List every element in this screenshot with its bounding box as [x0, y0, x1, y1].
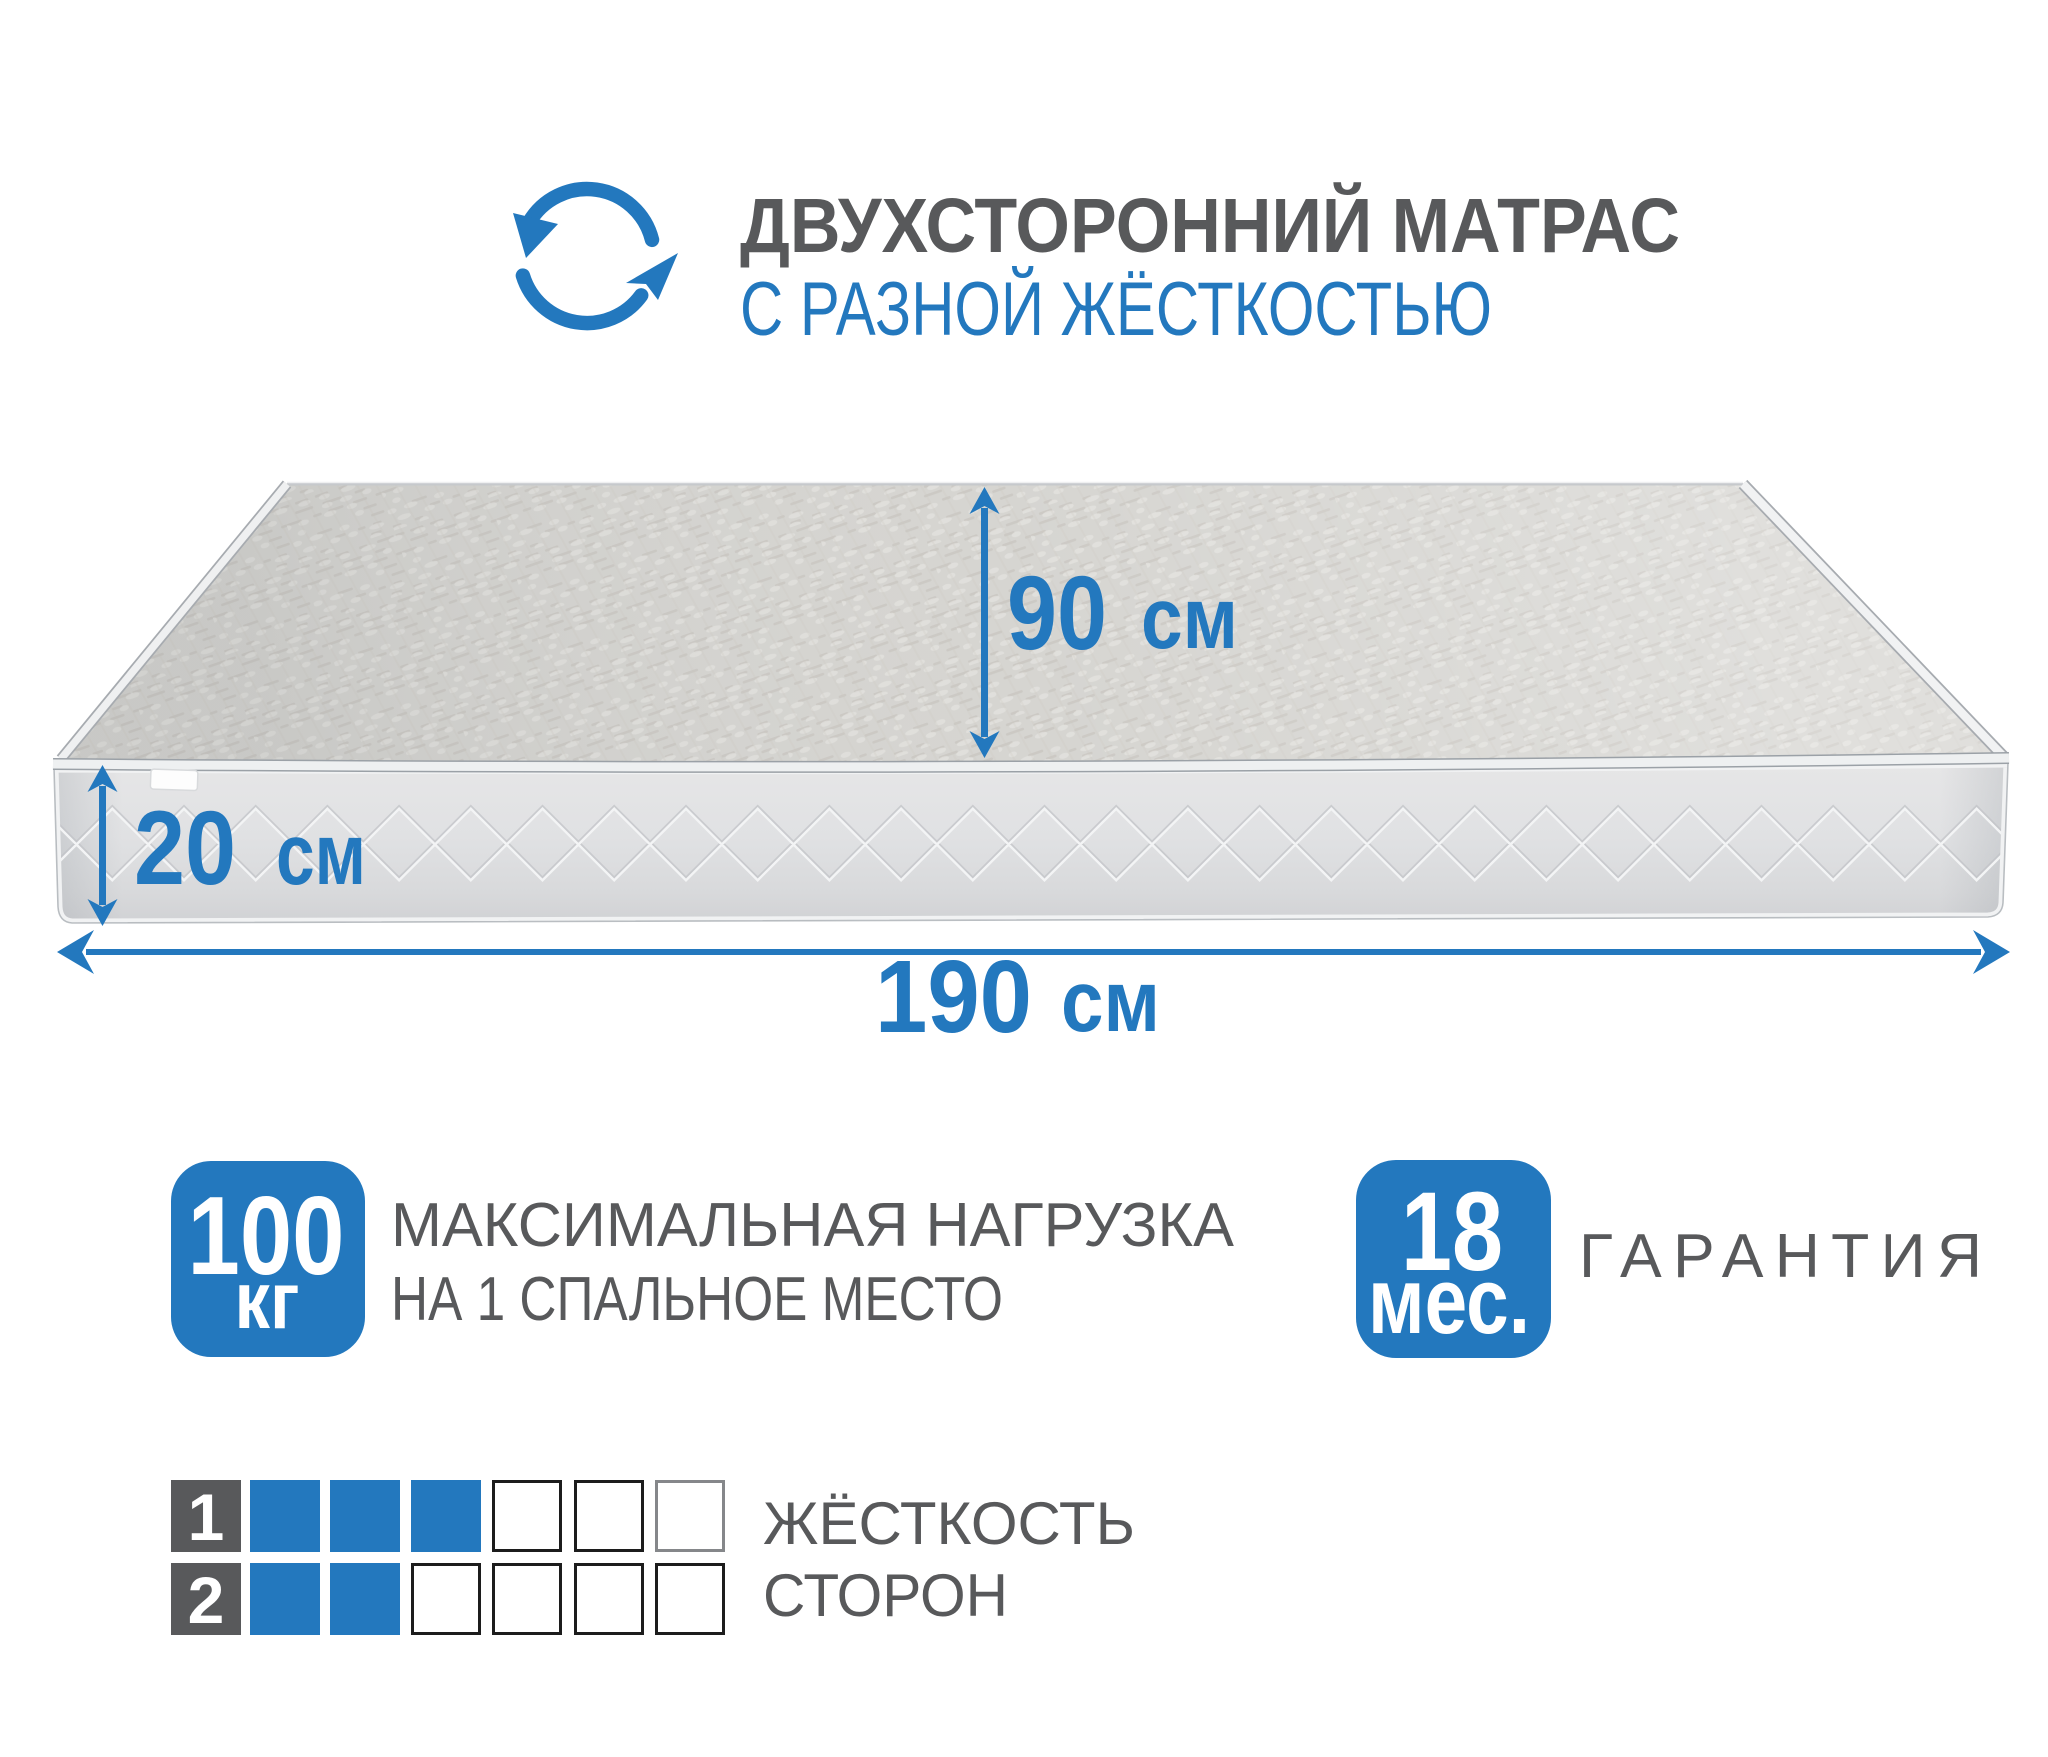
- svg-text:ЖЁСТКОСТЬ: ЖЁСТКОСТЬ: [763, 1490, 1135, 1557]
- svg-text:кг: кг: [235, 1256, 300, 1346]
- svg-text:см: см: [276, 806, 366, 903]
- svg-text:С РАЗНОЙ ЖЁСТКОСТЬЮ: С РАЗНОЙ ЖЁСТКОСТЬЮ: [740, 266, 1492, 352]
- svg-text:ГАРАНТИЯ: ГАРАНТИЯ: [1579, 1221, 1982, 1291]
- svg-text:1: 1: [188, 1480, 225, 1554]
- svg-text:СТОРОН: СТОРОН: [763, 1562, 1008, 1629]
- svg-text:190: 190: [875, 939, 1032, 1054]
- svg-text:мес.: мес.: [1368, 1248, 1530, 1353]
- svg-text:90: 90: [1007, 555, 1107, 672]
- svg-text:НА 1 СПАЛЬНОЕ МЕСТО: НА 1 СПАЛЬНОЕ МЕСТО: [391, 1265, 1003, 1334]
- svg-text:ДВУХСТОРОННИЙ МАТРАС: ДВУХСТОРОННИЙ МАТРАС: [740, 181, 1680, 269]
- svg-text:см: см: [1061, 953, 1160, 1050]
- svg-text:2: 2: [188, 1563, 225, 1637]
- svg-text:МАКСИМАЛЬНАЯ НАГРУЗКА: МАКСИМАЛЬНАЯ НАГРУЗКА: [391, 1191, 1235, 1260]
- svg-text:20: 20: [134, 790, 236, 907]
- svg-text:см: см: [1141, 570, 1238, 667]
